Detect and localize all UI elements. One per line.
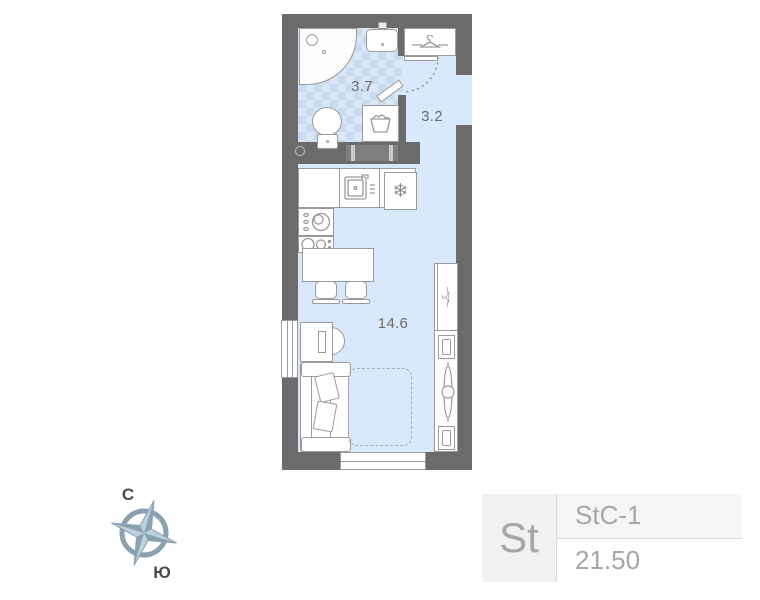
kitchen-sink-icon [342, 171, 378, 205]
unit-layout-code: StC-1 [557, 494, 742, 538]
unit-area-value: 21.50 [557, 538, 742, 583]
compass-south-label: Ю [153, 563, 171, 583]
stool [315, 281, 337, 299]
floor-plan-page: ❄ [0, 0, 760, 600]
unit-details-cells: StC-1 21.50 [556, 494, 742, 582]
shower-head-icon [306, 34, 318, 46]
washing-machine [362, 105, 399, 142]
toilet-bowl [312, 107, 342, 136]
kitchen-sink-unit [298, 208, 334, 236]
round-sink-icon [299, 209, 333, 235]
folded-bed-outline [348, 368, 412, 446]
window-left-glazing2 [292, 321, 293, 377]
desk [300, 322, 333, 362]
window-bottom [340, 452, 426, 470]
area-label-hallway: 3.2 [410, 108, 454, 125]
laptop [318, 331, 326, 353]
wall-niche-bar-left [351, 145, 355, 161]
hanger-icon [410, 35, 450, 49]
wall-niche-bar-right [389, 145, 393, 161]
refrigerator: ❄ [384, 172, 417, 210]
wall-right-lower [456, 125, 472, 470]
snowflake-icon: ❄ [393, 182, 409, 201]
area-label-bathroom: 3.7 [340, 78, 384, 95]
stool [345, 281, 367, 299]
kitchen-table [302, 248, 374, 282]
unit-type-cell: St [482, 494, 556, 582]
area-label-living: 14.6 [371, 315, 415, 332]
window-left-glazing [287, 321, 288, 377]
laundry-basket-icon [363, 106, 398, 141]
counter-divider2 [379, 169, 380, 207]
entry-door-swing-arc [398, 52, 444, 100]
toilet-button [326, 140, 329, 143]
ironing-board-icon [441, 360, 455, 424]
wardrobe-door-line [437, 264, 438, 330]
wall-top [282, 14, 472, 28]
bath-sink-faucet [378, 22, 387, 29]
wardrobe-living [434, 263, 458, 331]
counter-divider1 [339, 169, 340, 207]
wall-right-upper [456, 14, 472, 75]
entry-door-opening [456, 75, 472, 125]
bath-sink-drain [381, 43, 384, 46]
unit-info-card[interactable]: St StC-1 21.50 [482, 494, 742, 582]
window-bottom-glazing [341, 461, 425, 462]
drawer-unit [438, 335, 455, 359]
plumbing-riser [295, 146, 305, 156]
stool-base [342, 299, 370, 304]
drawer-unit [438, 426, 455, 450]
wall-bathroom-divider-lower [398, 95, 406, 142]
sofa-armrest-bottom [301, 437, 351, 452]
toilet-tank [317, 134, 338, 149]
wall-left [282, 14, 298, 470]
stool-base [312, 299, 340, 304]
shower-drain-dot [322, 50, 326, 54]
bath-sink [366, 29, 398, 52]
hanger-icon [439, 286, 453, 308]
window-left [281, 320, 298, 378]
compass-rose-icon [106, 496, 182, 572]
